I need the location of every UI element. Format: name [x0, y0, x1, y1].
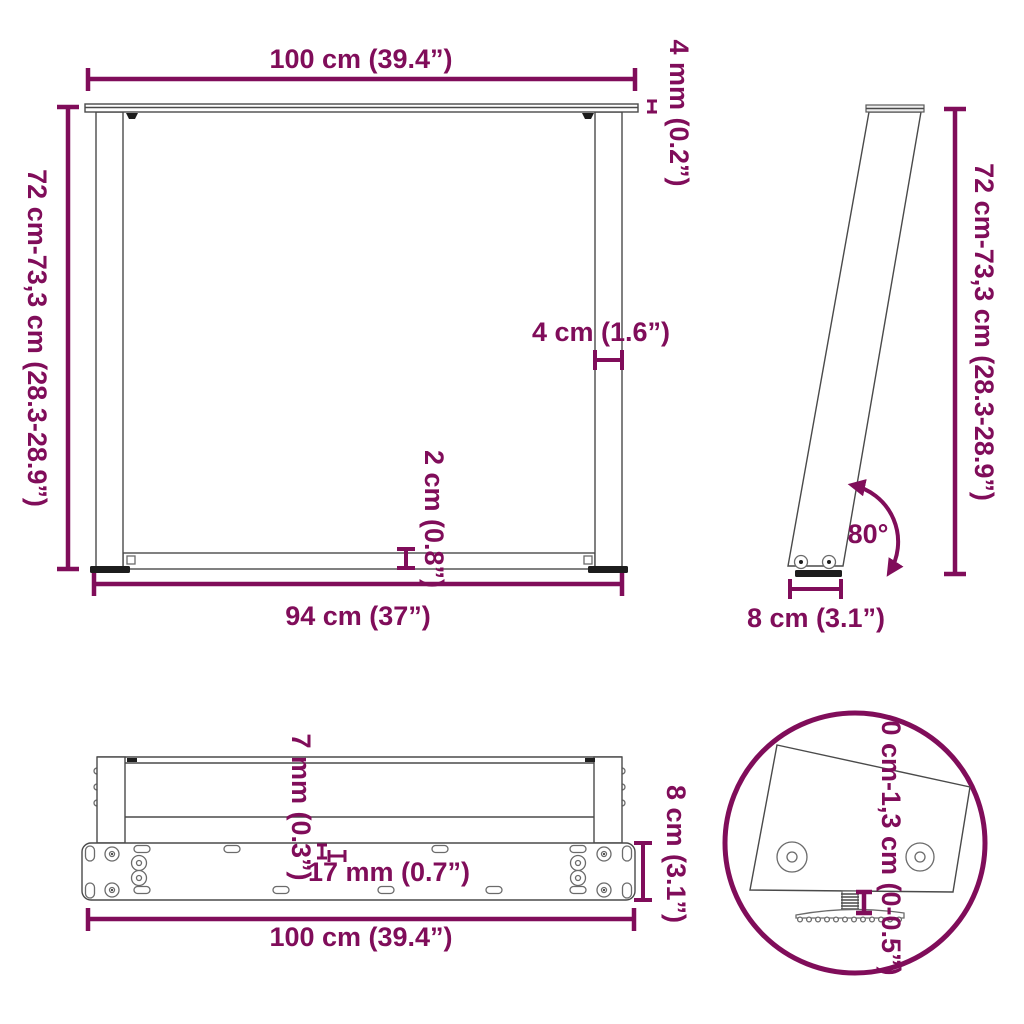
dim-label-foot-depth: 8 cm (3.1”) [747, 603, 885, 633]
crossbar [123, 553, 595, 569]
diagram-page: 100 cm (39.4”) 4 mm (0.2”) 72 cm-73,3 cm… [0, 0, 1024, 1024]
crossbar-bolt-right [584, 556, 592, 564]
dim-label-adjustment-range: 0 cm-1,3 cm (0-0.5”) [876, 720, 906, 975]
dim-crossbar-thickness: 2 cm (0.8”) [397, 450, 449, 588]
dim-label-total-width: 100 cm (39.4”) [269, 922, 452, 952]
dim-label-bottom-width: 94 cm (37”) [285, 601, 431, 631]
front-view: 100 cm (39.4”) 4 mm (0.2”) 72 cm-73,3 cm… [22, 39, 694, 631]
mount-screw-right [582, 113, 594, 119]
dim-label-plate-thickness: 4 mm (0.2”) [664, 39, 694, 186]
dim-label-height-side: 72 cm-73,3 cm (28.3-28.9”) [969, 163, 999, 501]
slanted-leg [788, 112, 921, 566]
dimension-diagram: 100 cm (39.4”) 4 mm (0.2”) 72 cm-73,3 cm… [0, 0, 1024, 1024]
dim-label-hole-spacing: 17 mm (0.7”) [308, 857, 470, 887]
mount-screw-left [126, 113, 138, 119]
dim-height-front: 72 cm-73,3 cm (28.3-28.9”) [22, 107, 79, 569]
dim-plate-depth: 8 cm (3.1”) [634, 785, 691, 923]
dim-total-width: 100 cm (39.4”) [88, 908, 634, 952]
bottom-view: 7 mm (0.3”) 17 mm (0.7”) 8 cm (3.1”) 100… [82, 733, 691, 952]
dim-height-side: 72 cm-73,3 cm (28.3-28.9”) [944, 109, 999, 574]
dim-label-angle: 80° [848, 519, 889, 549]
side-view: 72 cm-73,3 cm (28.3-28.9”) 80° 8 cm (3.1… [747, 105, 999, 633]
right-leg-end [594, 757, 622, 843]
dim-foot-depth: 8 cm (3.1”) [747, 579, 885, 633]
dim-label-height-front: 72 cm-73,3 cm (28.3-28.9”) [22, 169, 52, 507]
left-leg-end [97, 757, 125, 843]
left-leg [96, 112, 123, 568]
dim-plate-thickness: 4 mm (0.2”) [647, 39, 694, 186]
right-foot [588, 566, 628, 573]
dim-bottom-width: 94 cm (37”) [94, 573, 622, 631]
dim-label-plate-depth: 8 cm (3.1”) [661, 785, 691, 923]
detail-view: 0 cm-1,3 cm (0-0.5”) [725, 713, 985, 976]
left-foot [90, 566, 130, 573]
dim-top-width: 100 cm (39.4”) [88, 44, 635, 91]
dim-label-crossbar-thickness: 2 cm (0.8”) [419, 450, 449, 588]
side-view-drawing [788, 105, 924, 577]
dim-label-top-width: 100 cm (39.4”) [269, 44, 452, 74]
dim-label-leg-width: 4 cm (1.6”) [532, 317, 670, 347]
crossbar-bolt-left [127, 556, 135, 564]
side-foot [795, 570, 842, 577]
